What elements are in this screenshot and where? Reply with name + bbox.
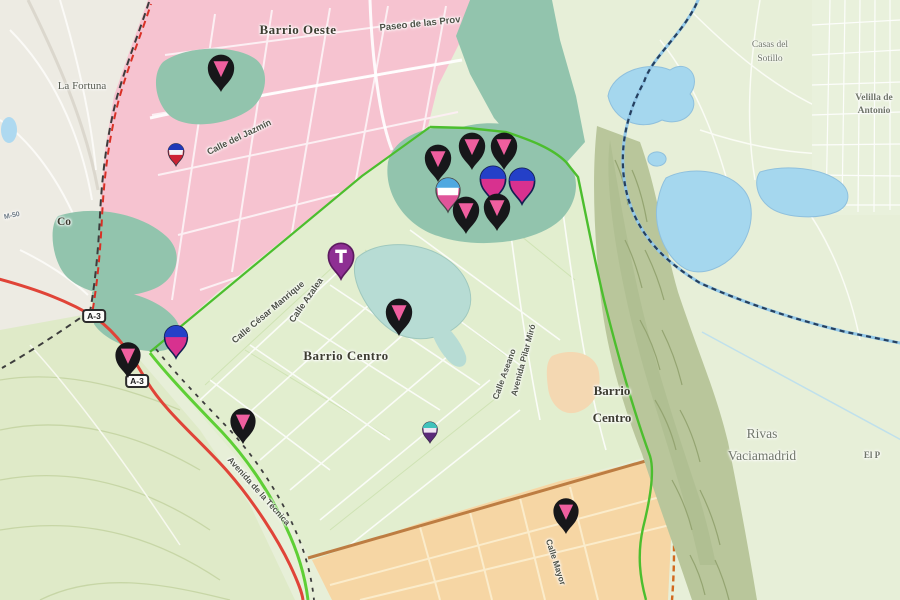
pins-layer bbox=[0, 0, 900, 600]
map-viewport: Barrio OestePaseo de las ProvLa FortunaM… bbox=[0, 0, 900, 600]
map-pin-pond[interactable] bbox=[386, 299, 412, 336]
map-pin-cluster-8[interactable] bbox=[484, 194, 510, 231]
map-pin-manrique[interactable] bbox=[328, 243, 353, 279]
map-pin-cluster-2[interactable] bbox=[459, 133, 485, 170]
map-pin-cluster-3[interactable] bbox=[491, 133, 517, 170]
map-pin-cluster-1[interactable] bbox=[425, 145, 451, 182]
map-pin-jazmin-small[interactable] bbox=[168, 144, 184, 166]
map-pin-oeste-park[interactable] bbox=[208, 55, 234, 92]
map-pin-centro-small[interactable] bbox=[423, 422, 438, 443]
map-pin-cluster-5[interactable] bbox=[509, 168, 534, 204]
map-pin-tecnica[interactable] bbox=[230, 408, 255, 444]
map-pin-cluster-7[interactable] bbox=[453, 197, 479, 234]
map-pin-mayor[interactable] bbox=[553, 498, 578, 534]
map-pin-a3[interactable] bbox=[115, 342, 140, 378]
map-pin-a3-blue[interactable] bbox=[165, 326, 188, 358]
